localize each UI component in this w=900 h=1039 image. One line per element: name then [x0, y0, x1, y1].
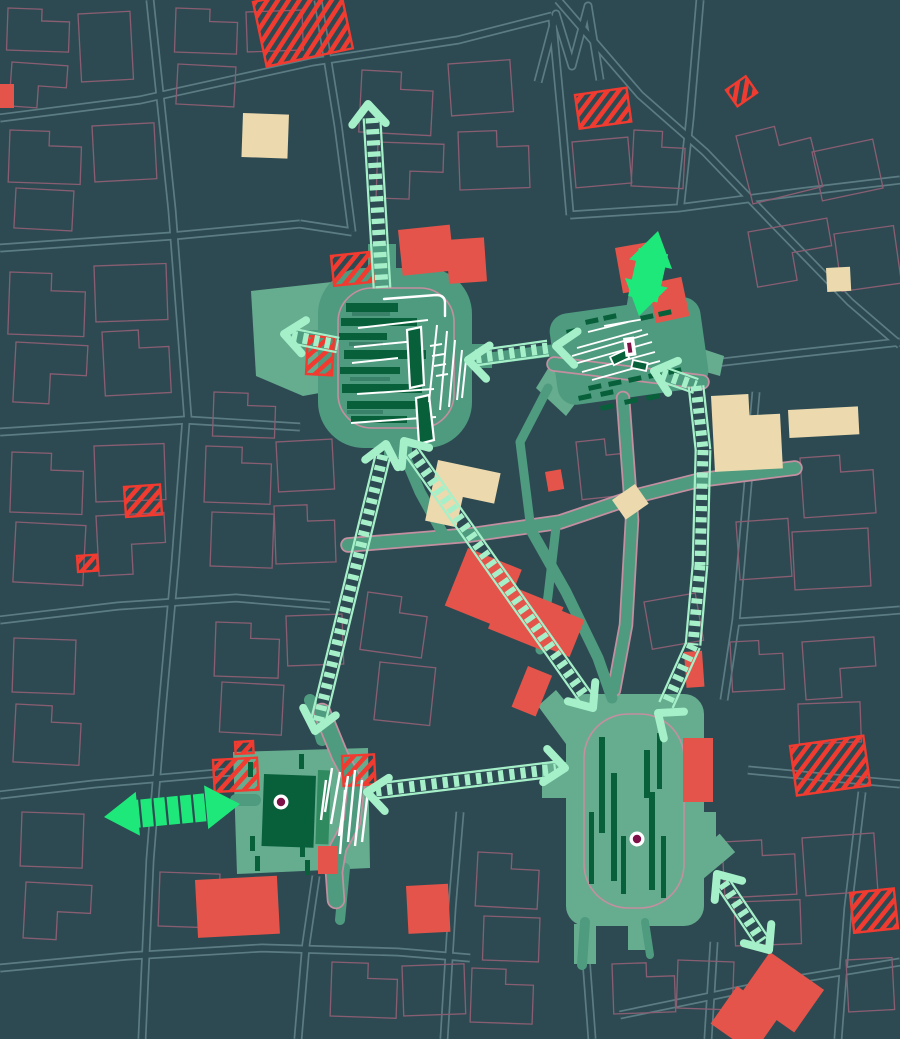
- urban-plan-map: [0, 0, 900, 1039]
- map-canvas: [0, 0, 900, 1039]
